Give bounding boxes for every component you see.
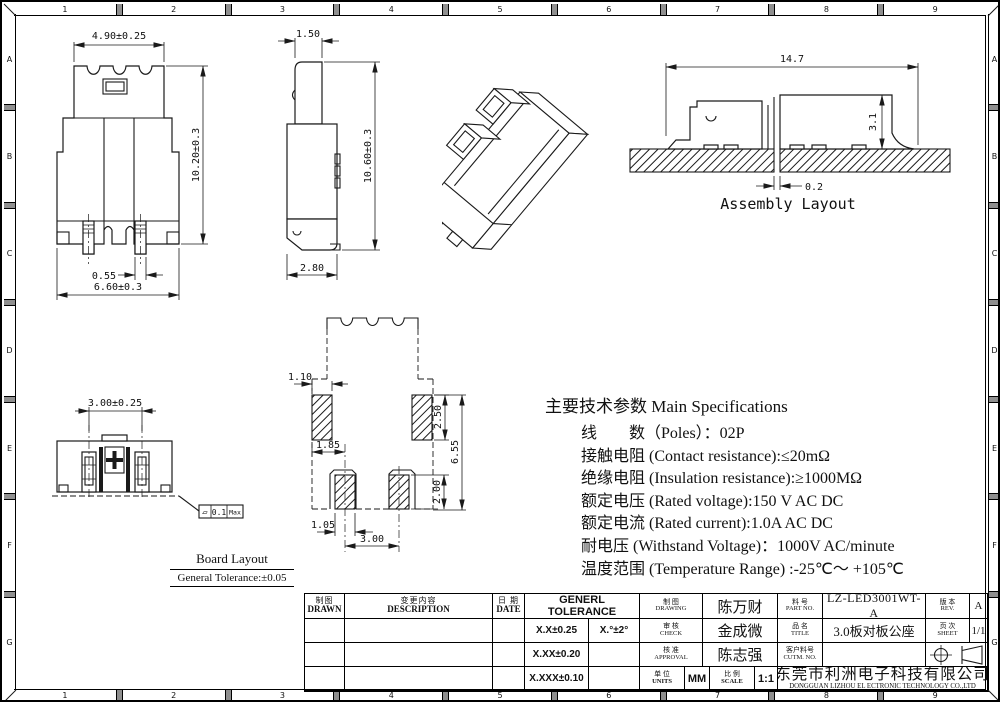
ruler-tick (4, 396, 15, 403)
spec-rated-voltage: 额定电压 (Rated voltage):150 V AC DC (545, 491, 993, 514)
flatness-symbol-icon: ▱ (202, 508, 208, 518)
tolerance-value: X.X±0.25 (525, 619, 589, 643)
ruler-tick (4, 591, 15, 598)
connector-side-outline (295, 62, 322, 124)
title-block: 制图DRAWN 变更内容DESCRIPTION 日 期DATE GENERL T… (304, 593, 989, 692)
main-specifications: 主要技术参数 Main Specifications 线 数（Poles）：02… (545, 392, 993, 581)
dim-base-width: 6.60±0.3 (94, 282, 142, 293)
revision-row-cell (345, 667, 493, 691)
ruler-tick (225, 4, 232, 15)
flatness-suffix: Max (229, 509, 241, 517)
ruler-label: 2 (123, 4, 225, 15)
pcb-right (780, 149, 950, 172)
ruler-label: 2 (123, 690, 225, 701)
mated-connectors-outline (668, 101, 762, 149)
product-title: 3.0板对板公座 (823, 619, 926, 643)
ruler-label: 1 (14, 690, 116, 701)
assembly-layout-drawing: 14.7 3.1 0.2 Assembly Layout (620, 50, 988, 218)
revision-row-cell (493, 619, 525, 643)
units-value: MM (685, 667, 710, 691)
revision-row-cell (345, 619, 493, 643)
side-view-drawing: 1.50 10.60±0.3 2.80 (264, 26, 399, 311)
check-name: 金成微 (703, 619, 778, 643)
spec-withstand-voltage: 耐电压 (Withstand Voltage)：1000V AC/minute (545, 536, 993, 559)
board-layout-drawing: 3.00±0.25 ▱ 0.1 Max (47, 395, 302, 540)
pad-top-right (412, 395, 432, 440)
rev-value: A (970, 594, 988, 619)
product-title-label: 品 名TITLE (778, 619, 823, 643)
revision-drawn-header: 制图DRAWN (305, 594, 345, 619)
ruler-tick (442, 4, 449, 15)
dim-front-height: 10.20±0.3 (191, 128, 202, 182)
ruler-label: D (4, 306, 15, 396)
ruler-label: 8 (775, 4, 877, 15)
ruler-tick (660, 4, 667, 15)
ruler-label: F (4, 500, 15, 590)
ruler-label: A (989, 14, 1000, 104)
ruler-tick (989, 299, 1000, 306)
approval-label: 核 准APPROVAL (640, 643, 703, 667)
dim-pad-overall-height: 6.55 (450, 440, 461, 464)
dim-front-width: 4.90±0.25 (92, 31, 146, 42)
ruler-label: E (4, 403, 15, 493)
dim-side-base: 2.80 (300, 263, 324, 274)
flatness-value: 0.1 (212, 508, 227, 517)
dim-pin-width: 0.55 (92, 271, 116, 282)
company-cell: 东莞市利洲电子科技有限公司 DONGGUAN LIZHOU EL ECTRONI… (778, 667, 988, 691)
scale-label: 比 例SCALE (710, 667, 755, 691)
approval-name: 陈志强 (703, 643, 778, 667)
company-name-en: DONGGUAN LIZHOU EL ECTRONIC TECHNOLOGY C… (789, 683, 976, 690)
revision-row-cell (305, 619, 345, 643)
general-tolerance-title: GENERL TOLERANCE (525, 594, 640, 619)
ruler-tick (768, 4, 775, 15)
spec-contact-resistance: 接触电阻 (Contact resistance):≤20mΩ (545, 446, 993, 469)
drawing-sheet: 123456789 123456789 ABCDEFG ABCDEFG 4.90… (0, 0, 1000, 702)
spec-rated-current: 额定电流 (Rated current):1.0A AC DC (545, 513, 993, 536)
ruler-label: G (4, 598, 15, 688)
dim-assembly-gap: 0.2 (805, 182, 823, 193)
ruler-tick (4, 299, 15, 306)
dim-pad-offset: 1.85 (316, 440, 340, 451)
third-angle-projection-icon (928, 644, 986, 666)
ruler-label: A (4, 14, 15, 104)
ruler-tick (989, 591, 1000, 598)
connector-crown-outline (327, 318, 418, 329)
dim-pad-pitch: 3.00 (360, 534, 384, 545)
drawing-label: 制 图DRAWING (640, 594, 703, 619)
ruler-label: 3 (232, 4, 334, 15)
ruler-tick (989, 202, 1000, 209)
revision-description-header: 变更内容DESCRIPTION (345, 594, 493, 619)
ruler-label: D (989, 306, 1000, 396)
ruler-tick (551, 4, 558, 15)
tolerance-value: X.XXX±0.10 (525, 667, 589, 691)
revision-row-cell (493, 667, 525, 691)
ruler-label: B (989, 111, 1000, 201)
ruler-label: 7 (667, 4, 769, 15)
scale-value: 1:1 (755, 667, 778, 691)
ruler-right: ABCDEFG (988, 14, 1000, 688)
ruler-tick (877, 4, 884, 15)
ruler-tick (4, 104, 15, 111)
ruler-tick (116, 690, 123, 701)
customer-no-value (823, 643, 926, 667)
pcb-left (630, 149, 774, 172)
dim-pad-width-top: 1.10 (288, 372, 312, 383)
tolerance-value: X.°±2° (589, 619, 640, 643)
general-tolerance-note: General Tolerance:±0.05 (170, 570, 294, 587)
ruler-tick (4, 493, 15, 500)
dim-assembly-width: 14.7 (780, 54, 804, 65)
revision-row-cell (345, 643, 493, 667)
ruler-tick (333, 4, 340, 15)
ruler-label: 9 (884, 4, 986, 15)
assembly-layout-caption: Assembly Layout (720, 195, 855, 213)
ruler-label: 5 (449, 4, 551, 15)
sheet-label: 页 次SHEET (926, 619, 970, 643)
projection-symbol-cell (926, 643, 988, 667)
tolerance-value (589, 667, 640, 691)
pad-top-left (312, 395, 332, 440)
ruler-tick (116, 4, 123, 15)
revision-row-cell (305, 667, 345, 691)
front-view-drawing: 4.90±0.25 10.20±0.3 0.55 6.60±0.3 (40, 26, 255, 311)
spec-insulation-resistance: 绝缘电阻 (Insulation resistance):≥1000MΩ (545, 468, 993, 491)
dim-pad-height-bottom: 2.00 (432, 480, 443, 504)
dim-assembly-height: 3.1 (868, 113, 879, 131)
ruler-tick (4, 202, 15, 209)
tolerance-value (589, 643, 640, 667)
specs-title: 主要技术参数 Main Specifications (545, 392, 993, 417)
board-layout-caption-block: Board Layout General Tolerance:±0.05 (170, 551, 294, 587)
dim-side-height: 10.60±0.3 (363, 129, 374, 183)
sheet-value: 1/1 (970, 619, 988, 643)
part-number: LZ-LED3001WT-A (823, 594, 926, 619)
rev-label: 版 本REV. (926, 594, 970, 619)
revision-row-cell (493, 643, 525, 667)
units-label: 单 位UNITS (640, 667, 685, 691)
tolerance-value: X.XX±0.20 (525, 643, 589, 667)
ruler-label: 4 (340, 4, 442, 15)
company-name-cn: 东莞市利洲电子科技有限公司 (778, 667, 988, 683)
dim-pad-width-bottom: 1.05 (311, 520, 335, 531)
customer-no-label: 客户料号CUTM. NO. (778, 643, 823, 667)
part-no-label: 料 号PART NO. (778, 594, 823, 619)
dim-side-width: 1.50 (296, 29, 320, 40)
spec-poles: 线 数（Poles）：02P (545, 423, 993, 446)
check-label: 审 核CHECK (640, 619, 703, 643)
ruler-label: G (989, 598, 1000, 688)
pad-layout-drawing: 1.10 2.50 2.00 6.55 1.85 1.05 3.00 (270, 294, 495, 562)
dim-board-pitch: 3.00±0.25 (88, 398, 142, 409)
drawing-name: 陈万财 (703, 594, 778, 619)
revision-row-cell (305, 643, 345, 667)
spec-temperature-range: 温度范围 (Temperature Range) :-25℃～ +105℃ (545, 559, 993, 582)
dim-pad-height-top: 2.50 (433, 405, 444, 429)
ruler-tick (989, 104, 1000, 111)
ruler-label: 6 (558, 4, 660, 15)
ruler-label: 1 (14, 4, 116, 15)
ruler-label: C (989, 209, 1000, 299)
board-layout-caption: Board Layout (170, 551, 294, 570)
revision-date-header: 日 期DATE (493, 594, 525, 619)
ruler-label: B (4, 111, 15, 201)
ruler-tick (225, 690, 232, 701)
ruler-label: C (4, 209, 15, 299)
